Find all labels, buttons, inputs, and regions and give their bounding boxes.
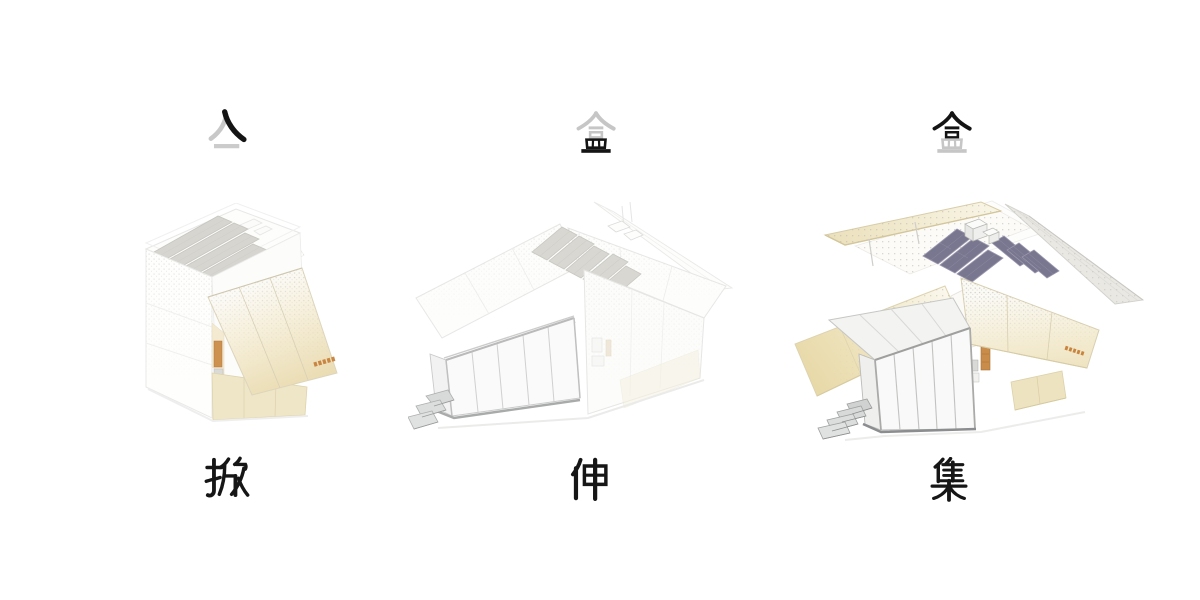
stage-2-top-glyph-drawing	[574, 111, 618, 155]
stage-2-bottom-label-drawing	[566, 456, 612, 502]
glyph-min-bottom-gray	[937, 140, 966, 153]
stage-1-bottom-label-drawing	[204, 456, 250, 502]
stage-3-bottom-label: 集	[926, 457, 972, 503]
stage-1-house-drawing	[128, 203, 368, 433]
stage-2-top-glyph: 盒	[574, 111, 618, 155]
lower-cream-panels	[1011, 371, 1066, 410]
glyph-he-top-black	[934, 113, 969, 137]
entry-steps	[818, 399, 872, 439]
stage-3-top-glyph-drawing	[930, 111, 974, 155]
stage-1-top-glyph-drawing	[204, 108, 250, 154]
transformation-concept-diagram: 亼 盒 盒	[0, 0, 1200, 600]
stage-2-house-illustration	[408, 188, 748, 433]
stage-2-house-drawing	[408, 188, 748, 433]
stage-3-house-illustration	[785, 186, 1180, 456]
glyph-he-top-gray	[578, 113, 613, 137]
stage-2-bottom-label: 伸	[566, 456, 612, 502]
stage-1-house-illustration	[128, 203, 368, 433]
stage-3-house-drawing	[785, 186, 1180, 456]
stage-1-top-glyph: 亼	[204, 108, 250, 154]
stage-3-top-glyph: 盒	[930, 111, 974, 155]
stage-3-bottom-label-drawing	[926, 457, 972, 503]
stage-1-bottom-label: 掀	[204, 456, 250, 502]
glyph-min-bottom-black	[581, 140, 610, 153]
interior-glimpse	[212, 323, 224, 380]
rooftop-mast	[630, 202, 632, 222]
